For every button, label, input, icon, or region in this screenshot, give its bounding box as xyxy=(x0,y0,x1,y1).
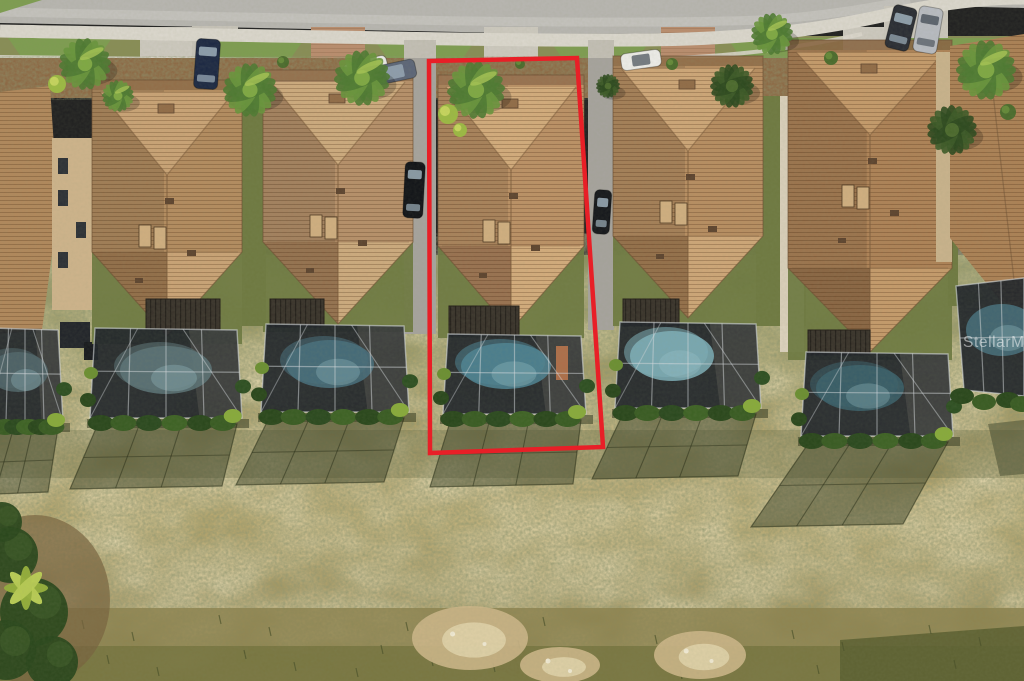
photo-grain-overlay xyxy=(0,0,1024,681)
watermark-text: StellarMLS xyxy=(963,334,1024,351)
photo-grain xyxy=(0,0,1024,681)
aerial-photo: StellarMLS xyxy=(0,0,1024,681)
aerial-photo-frame: StellarMLS xyxy=(0,0,1024,681)
scene-layers xyxy=(0,0,1024,681)
